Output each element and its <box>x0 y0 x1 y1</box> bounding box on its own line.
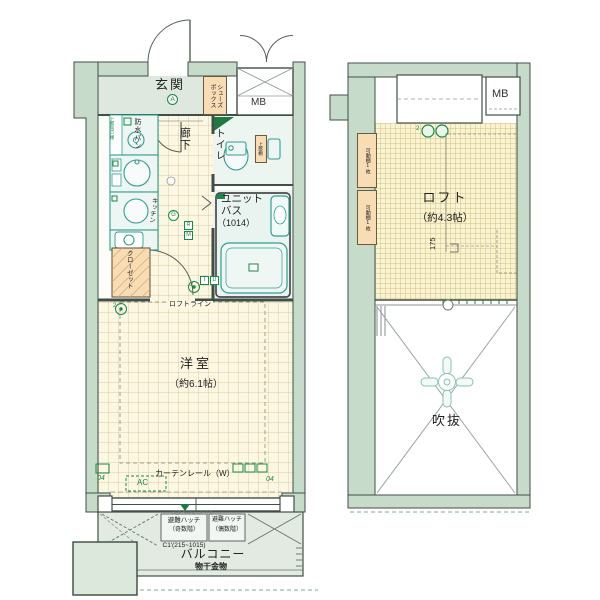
hatch-even-line1: 避難ハッチ <box>209 517 245 524</box>
high-sash-label: High Sash(H=2,110) <box>172 510 213 515</box>
upper-shelf-label: 上部棚 <box>255 135 267 163</box>
toilet-label: トイレ <box>213 128 224 168</box>
loft-dimension-label: 175 <box>429 237 437 250</box>
marker-i: I <box>200 276 209 285</box>
unit-bath-label-2: バス <box>221 206 242 218</box>
hallway-mark: G <box>168 210 179 221</box>
marker-two-1: 2 <box>113 303 116 310</box>
loft-wall-notch <box>330 95 348 120</box>
left-wall <box>74 62 98 505</box>
loft-right-wall <box>517 63 530 508</box>
hatch-odd-line1: 避難ハッチ <box>161 517 207 524</box>
mb-main-label: MB <box>251 97 266 108</box>
plan-linework <box>0 0 600 600</box>
upper-cabinet-label: 上部吊戸棚 <box>110 117 115 154</box>
marker-m: M <box>184 231 193 240</box>
curtain-rail-label: カーテンレール（W） <box>155 470 235 479</box>
loft-bottom-wall <box>348 495 530 508</box>
floorplan-canvas: 玄関 A シューズ ボックス MB 防水パン 上部吊戸棚 廊下 G トイレ 上部… <box>0 0 600 600</box>
hatch-even-line2: （偶数階） <box>209 527 245 534</box>
unit-bath-size: （1014） <box>217 218 255 228</box>
marker-two-2: 2 <box>190 282 193 289</box>
exterior-block <box>73 542 137 595</box>
hallway-label: 廊下 <box>178 127 190 159</box>
loft-label: ロフト <box>402 191 488 206</box>
drying-fixture-label: 物干金物 <box>183 563 239 572</box>
ac-label: AC <box>137 479 148 488</box>
genkan-mark: A <box>167 94 178 105</box>
genkan-label: 玄関 <box>148 78 192 93</box>
ceiling-fan <box>421 357 473 407</box>
right-wall-main <box>293 62 305 505</box>
closet-label: クローゼット <box>125 250 132 296</box>
movable-shelf-2-label: 可動棚1枚 <box>357 190 377 245</box>
top-wall-left <box>98 62 148 76</box>
void-label: 吹抜 <box>424 414 470 429</box>
outlet-right-label: 04 <box>266 476 274 484</box>
loft-line-label: ロフトライン <box>167 301 213 309</box>
marker-r: R <box>184 221 193 230</box>
unit-bath-label-1: ユニット <box>221 194 263 206</box>
toilet-counter <box>268 139 280 159</box>
loft-size-label: （約4.3帖） <box>402 213 488 225</box>
mb-loft-label: MB <box>492 88 509 100</box>
shoebox-label: シューズ ボックス <box>203 76 227 115</box>
room-label: 洋室 <box>146 357 246 372</box>
room-size-label: （約6.1帖） <box>146 379 246 390</box>
waterproof-pan-label: 防水パン <box>133 118 141 154</box>
marker-u: U <box>210 276 219 285</box>
top-wall-mid <box>188 62 237 76</box>
movable-shelf-1-label: 可動棚1枚 <box>357 133 377 188</box>
balcony-label: バルコニー <box>171 548 255 561</box>
outlet-left-label: 04 <box>97 475 105 483</box>
marker-two-3: 2 <box>416 126 419 133</box>
hatch-odd-line2: （奇数階） <box>161 527 207 534</box>
bath-door-arrow <box>202 196 211 210</box>
